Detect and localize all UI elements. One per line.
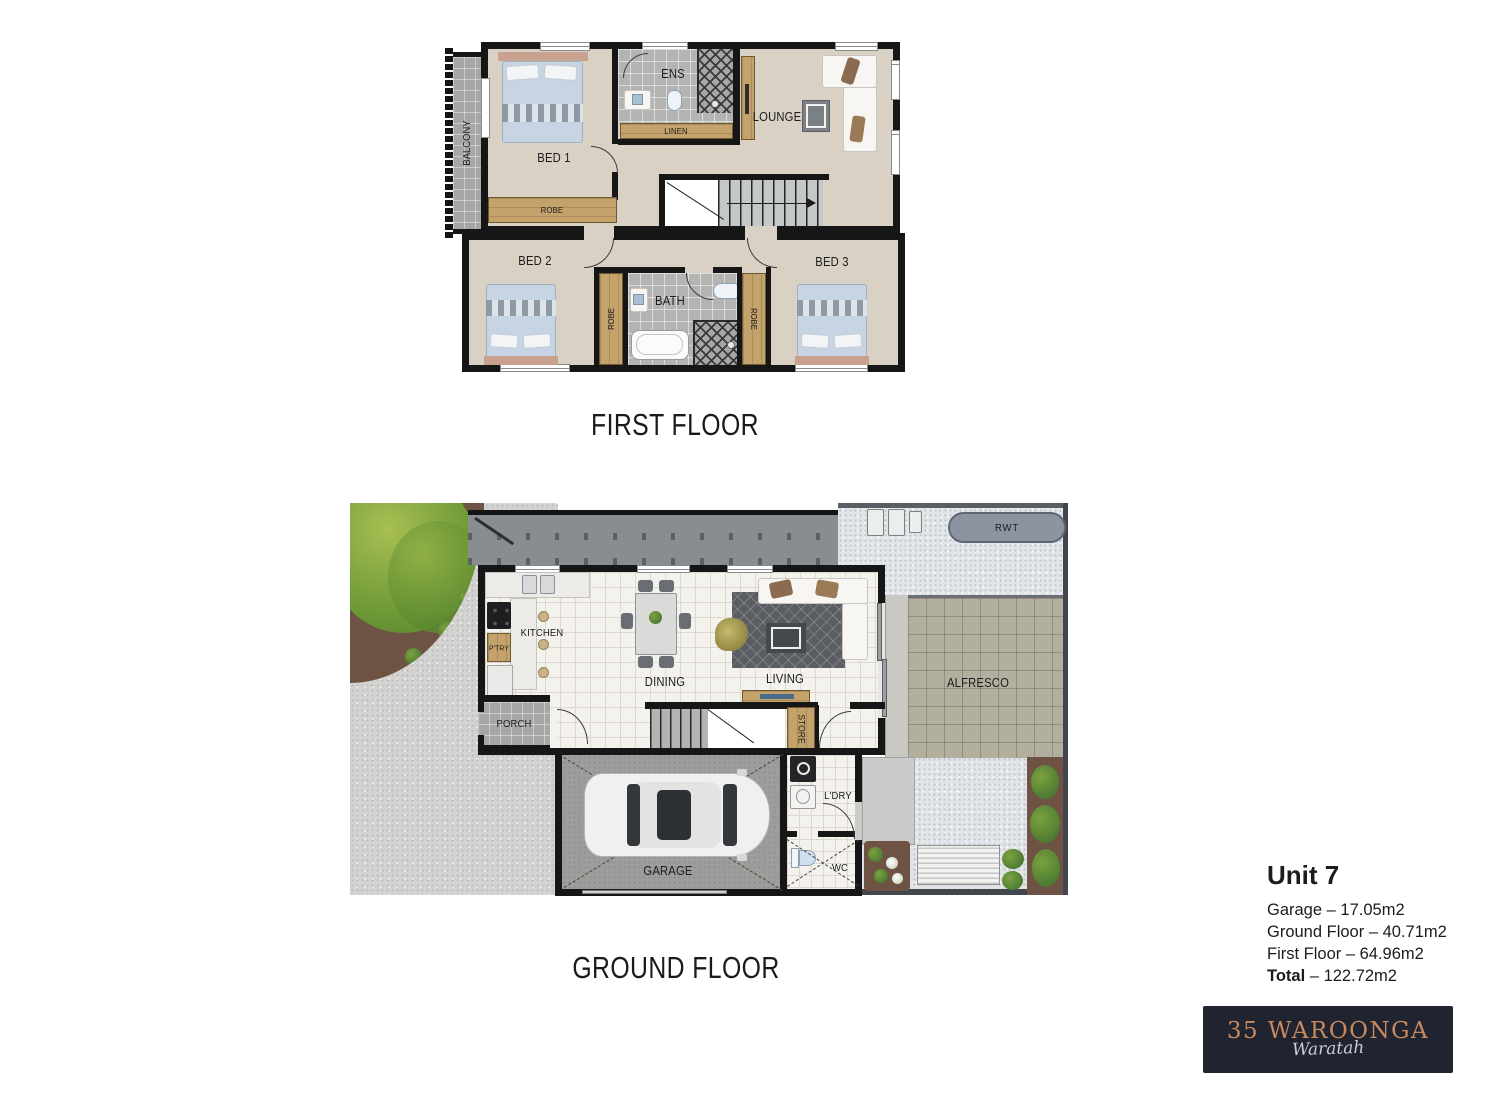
sliding-door-panel xyxy=(877,603,882,661)
hot-water-unit xyxy=(867,509,884,536)
pergola-deck xyxy=(468,510,838,565)
room-label-bed1: BED 1 xyxy=(537,151,570,165)
car-windshield xyxy=(723,784,737,846)
flower-icon xyxy=(874,869,888,883)
dining-chair xyxy=(659,580,674,592)
pantry-label: P'TRY xyxy=(489,644,509,653)
laundry-ext-door-opening xyxy=(855,802,862,840)
bed3-bedhead xyxy=(795,356,869,365)
room-label-bath: BATH xyxy=(655,294,685,308)
bed1-bed-icon xyxy=(498,52,588,61)
bathtub-inner xyxy=(636,334,683,355)
fern-icon xyxy=(405,648,422,665)
hot-water-unit xyxy=(909,511,922,533)
robe-label: ROBE xyxy=(749,308,759,330)
room-label-bed2: BED 2 xyxy=(518,254,551,268)
laundry-basin xyxy=(796,789,810,804)
stair-void xyxy=(708,709,785,750)
shrub-icon xyxy=(1031,765,1059,799)
robe-label: ROBE xyxy=(606,308,616,330)
unit-area-summary: Unit 7 Garage – 17.05m2 Ground Floor – 4… xyxy=(1267,860,1447,987)
dining-chair xyxy=(659,656,674,668)
room-label-laundry: L'DRY xyxy=(824,790,852,802)
room-label-garage: GARAGE xyxy=(643,864,692,878)
window xyxy=(891,130,900,175)
rwt-label: RWT xyxy=(995,522,1019,534)
pillow xyxy=(801,333,830,349)
balcony-door-opening xyxy=(481,78,490,138)
living-sofa xyxy=(842,603,868,660)
first-floor-title: FIRST FLOOR xyxy=(591,407,759,443)
stairs-ground-floor xyxy=(650,709,708,750)
pillow xyxy=(506,64,540,81)
stool-icon xyxy=(538,667,549,678)
shower-head-icon xyxy=(711,100,719,108)
kitchen-sink-icon xyxy=(540,575,555,594)
pillow xyxy=(490,333,519,349)
bush-icon xyxy=(1002,871,1023,890)
room-label-lounge: LOUNGE xyxy=(753,110,802,124)
room-label-dining: DINING xyxy=(645,675,685,689)
linen-label: LINEN xyxy=(664,126,687,136)
pillow xyxy=(834,333,863,349)
window xyxy=(500,364,570,372)
bed2-throw xyxy=(486,300,556,316)
room-label-porch: PORCH xyxy=(496,718,531,730)
window xyxy=(637,565,690,573)
logo-subtitle: Waratah xyxy=(1292,1038,1365,1061)
dining-chair xyxy=(638,580,653,592)
window xyxy=(795,364,868,372)
shrub-icon xyxy=(1032,849,1060,887)
coffee-table-inner xyxy=(771,627,801,649)
car-mirror xyxy=(737,769,747,776)
window xyxy=(835,42,878,51)
pillow xyxy=(523,333,552,349)
stool-icon xyxy=(538,611,549,622)
tv-icon xyxy=(760,694,794,699)
rear-landing-pad xyxy=(862,757,915,845)
entry-door-opening xyxy=(550,709,557,739)
area-row: First Floor – 64.96m2 xyxy=(1267,943,1447,965)
hot-water-unit xyxy=(888,509,905,536)
ens-basin xyxy=(632,94,643,105)
ens-toilet-icon xyxy=(667,90,682,111)
coffee-table-inner xyxy=(806,104,826,128)
wc-toilet-icon xyxy=(791,848,799,868)
dining-chair xyxy=(621,613,633,629)
bath-basin xyxy=(633,294,644,305)
bed2-bedhead xyxy=(484,356,558,365)
window xyxy=(891,60,900,100)
room-label-ens: ENS xyxy=(661,67,685,81)
stair-direction-arrow xyxy=(807,198,816,208)
dining-chair xyxy=(679,613,691,629)
dining-chair xyxy=(638,656,653,668)
room-label-bed3: BED 3 xyxy=(815,255,848,269)
floorplan-sheet: BALCONY BED 1 ROBE xyxy=(0,0,1500,1111)
flower-icon xyxy=(892,873,903,884)
flower-icon xyxy=(868,847,883,862)
area-row: Garage – 17.05m2 xyxy=(1267,899,1447,921)
dining-table-icon xyxy=(635,593,677,655)
brand-logo: 35 WAROONGA Waratah xyxy=(1203,1006,1453,1073)
bed3-throw xyxy=(797,300,867,316)
cooktop-icon xyxy=(487,602,511,629)
garage-door xyxy=(582,890,727,894)
kitchen-island xyxy=(510,598,537,690)
area-row: Total – 122.72m2 xyxy=(1267,965,1447,987)
boundary-top xyxy=(838,503,1063,508)
car-mirror xyxy=(737,854,747,861)
unit-title: Unit 7 xyxy=(1267,860,1447,891)
pillow xyxy=(544,64,578,81)
flower-icon xyxy=(886,857,898,869)
kitchen-bench xyxy=(485,572,590,598)
first-floor-plan: BALCONY BED 1 ROBE xyxy=(445,38,910,375)
store-label: STORE xyxy=(796,714,807,743)
fern-icon xyxy=(438,621,458,641)
flower-bed xyxy=(864,841,910,891)
shrub-icon xyxy=(1030,805,1060,843)
fence-right xyxy=(1063,503,1068,895)
room-label-wc: WC xyxy=(832,862,848,874)
ground-floor-title: GROUND FLOOR xyxy=(572,950,779,986)
shower-head-icon xyxy=(727,341,735,349)
bed1-throw xyxy=(502,104,583,122)
room-label-kitchen: KITCHEN xyxy=(521,627,564,639)
car-icon xyxy=(584,773,770,857)
fern-icon xyxy=(458,591,473,606)
deck-grate xyxy=(917,845,1000,885)
bath-toilet-icon xyxy=(713,283,738,299)
balcony-railing xyxy=(445,48,453,238)
room-label-living: LIVING xyxy=(766,672,804,686)
ground-floor-plan: RWT ALFRESCO P'TRY KITCHEN xyxy=(350,503,1068,895)
alfresco-step xyxy=(885,595,908,757)
robe-label: ROBE xyxy=(541,205,563,215)
tv-icon xyxy=(745,84,749,114)
bush-icon xyxy=(1002,849,1024,869)
window xyxy=(540,42,590,51)
kitchen-sink-icon xyxy=(522,575,537,594)
washer-door xyxy=(797,762,810,775)
room-label-balcony: BALCONY xyxy=(461,120,473,165)
car-rear-window xyxy=(627,784,640,846)
car-sunroof xyxy=(657,790,691,840)
table-plant-icon xyxy=(649,611,662,624)
stool-icon xyxy=(538,639,549,650)
window xyxy=(727,565,773,573)
area-row: Ground Floor – 40.71m2 xyxy=(1267,921,1447,943)
room-label-alfresco: ALFRESCO xyxy=(947,676,1009,690)
